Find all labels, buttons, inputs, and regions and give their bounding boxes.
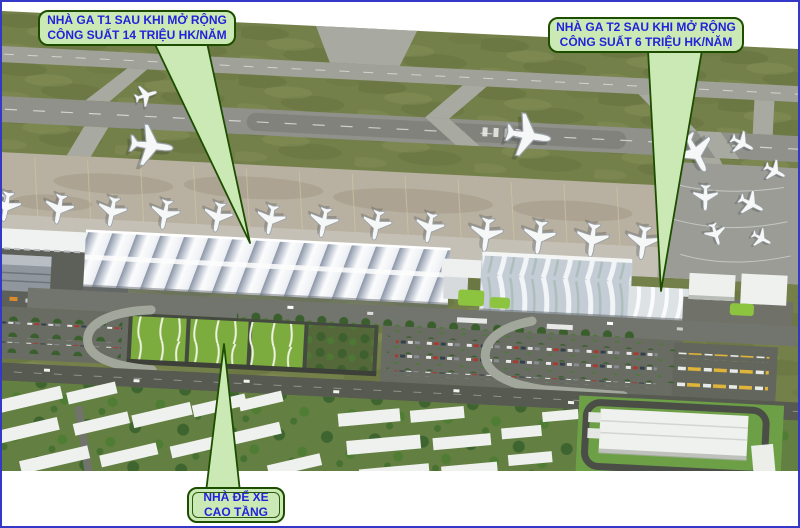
t1-terminal-callout: NHÀ GA T1 SAU KHI MỞ RỘNG CÔNG SUẤT 14 T… bbox=[38, 10, 236, 46]
t1-callout-line1: NHÀ GA T1 SAU KHI MỞ RỘNG bbox=[47, 13, 227, 28]
t2-callout-line1: NHÀ GA T2 SAU KHI MỞ RỘNG bbox=[556, 20, 736, 35]
large-warehouse bbox=[575, 395, 784, 485]
aerial-photo bbox=[0, 0, 800, 528]
t2-terminal-callout: NHÀ GA T2 SAU KHI MỞ RỘNG CÔNG SUẤT 6 TR… bbox=[548, 17, 744, 53]
parking-callout-line2: CAO TẦNG bbox=[204, 505, 268, 520]
parking-callout-line1: NHÀ ĐỂ XE bbox=[203, 490, 268, 505]
t2-callout-line2: CÔNG SUẤT 6 TRIỆU HK/NĂM bbox=[560, 35, 733, 50]
figure-canvas: NHÀ GA T1 SAU KHI MỞ RỘNG CÔNG SUẤT 14 T… bbox=[0, 0, 800, 528]
t2-lawn-patch bbox=[458, 289, 485, 306]
parking-garage-callout: NHÀ ĐỂ XE CAO TẦNG bbox=[187, 487, 285, 523]
t1-callout-line2: CÔNG SUẤT 14 TRIỆU HK/NĂM bbox=[47, 28, 226, 43]
garage-hedge-rows bbox=[306, 325, 374, 372]
